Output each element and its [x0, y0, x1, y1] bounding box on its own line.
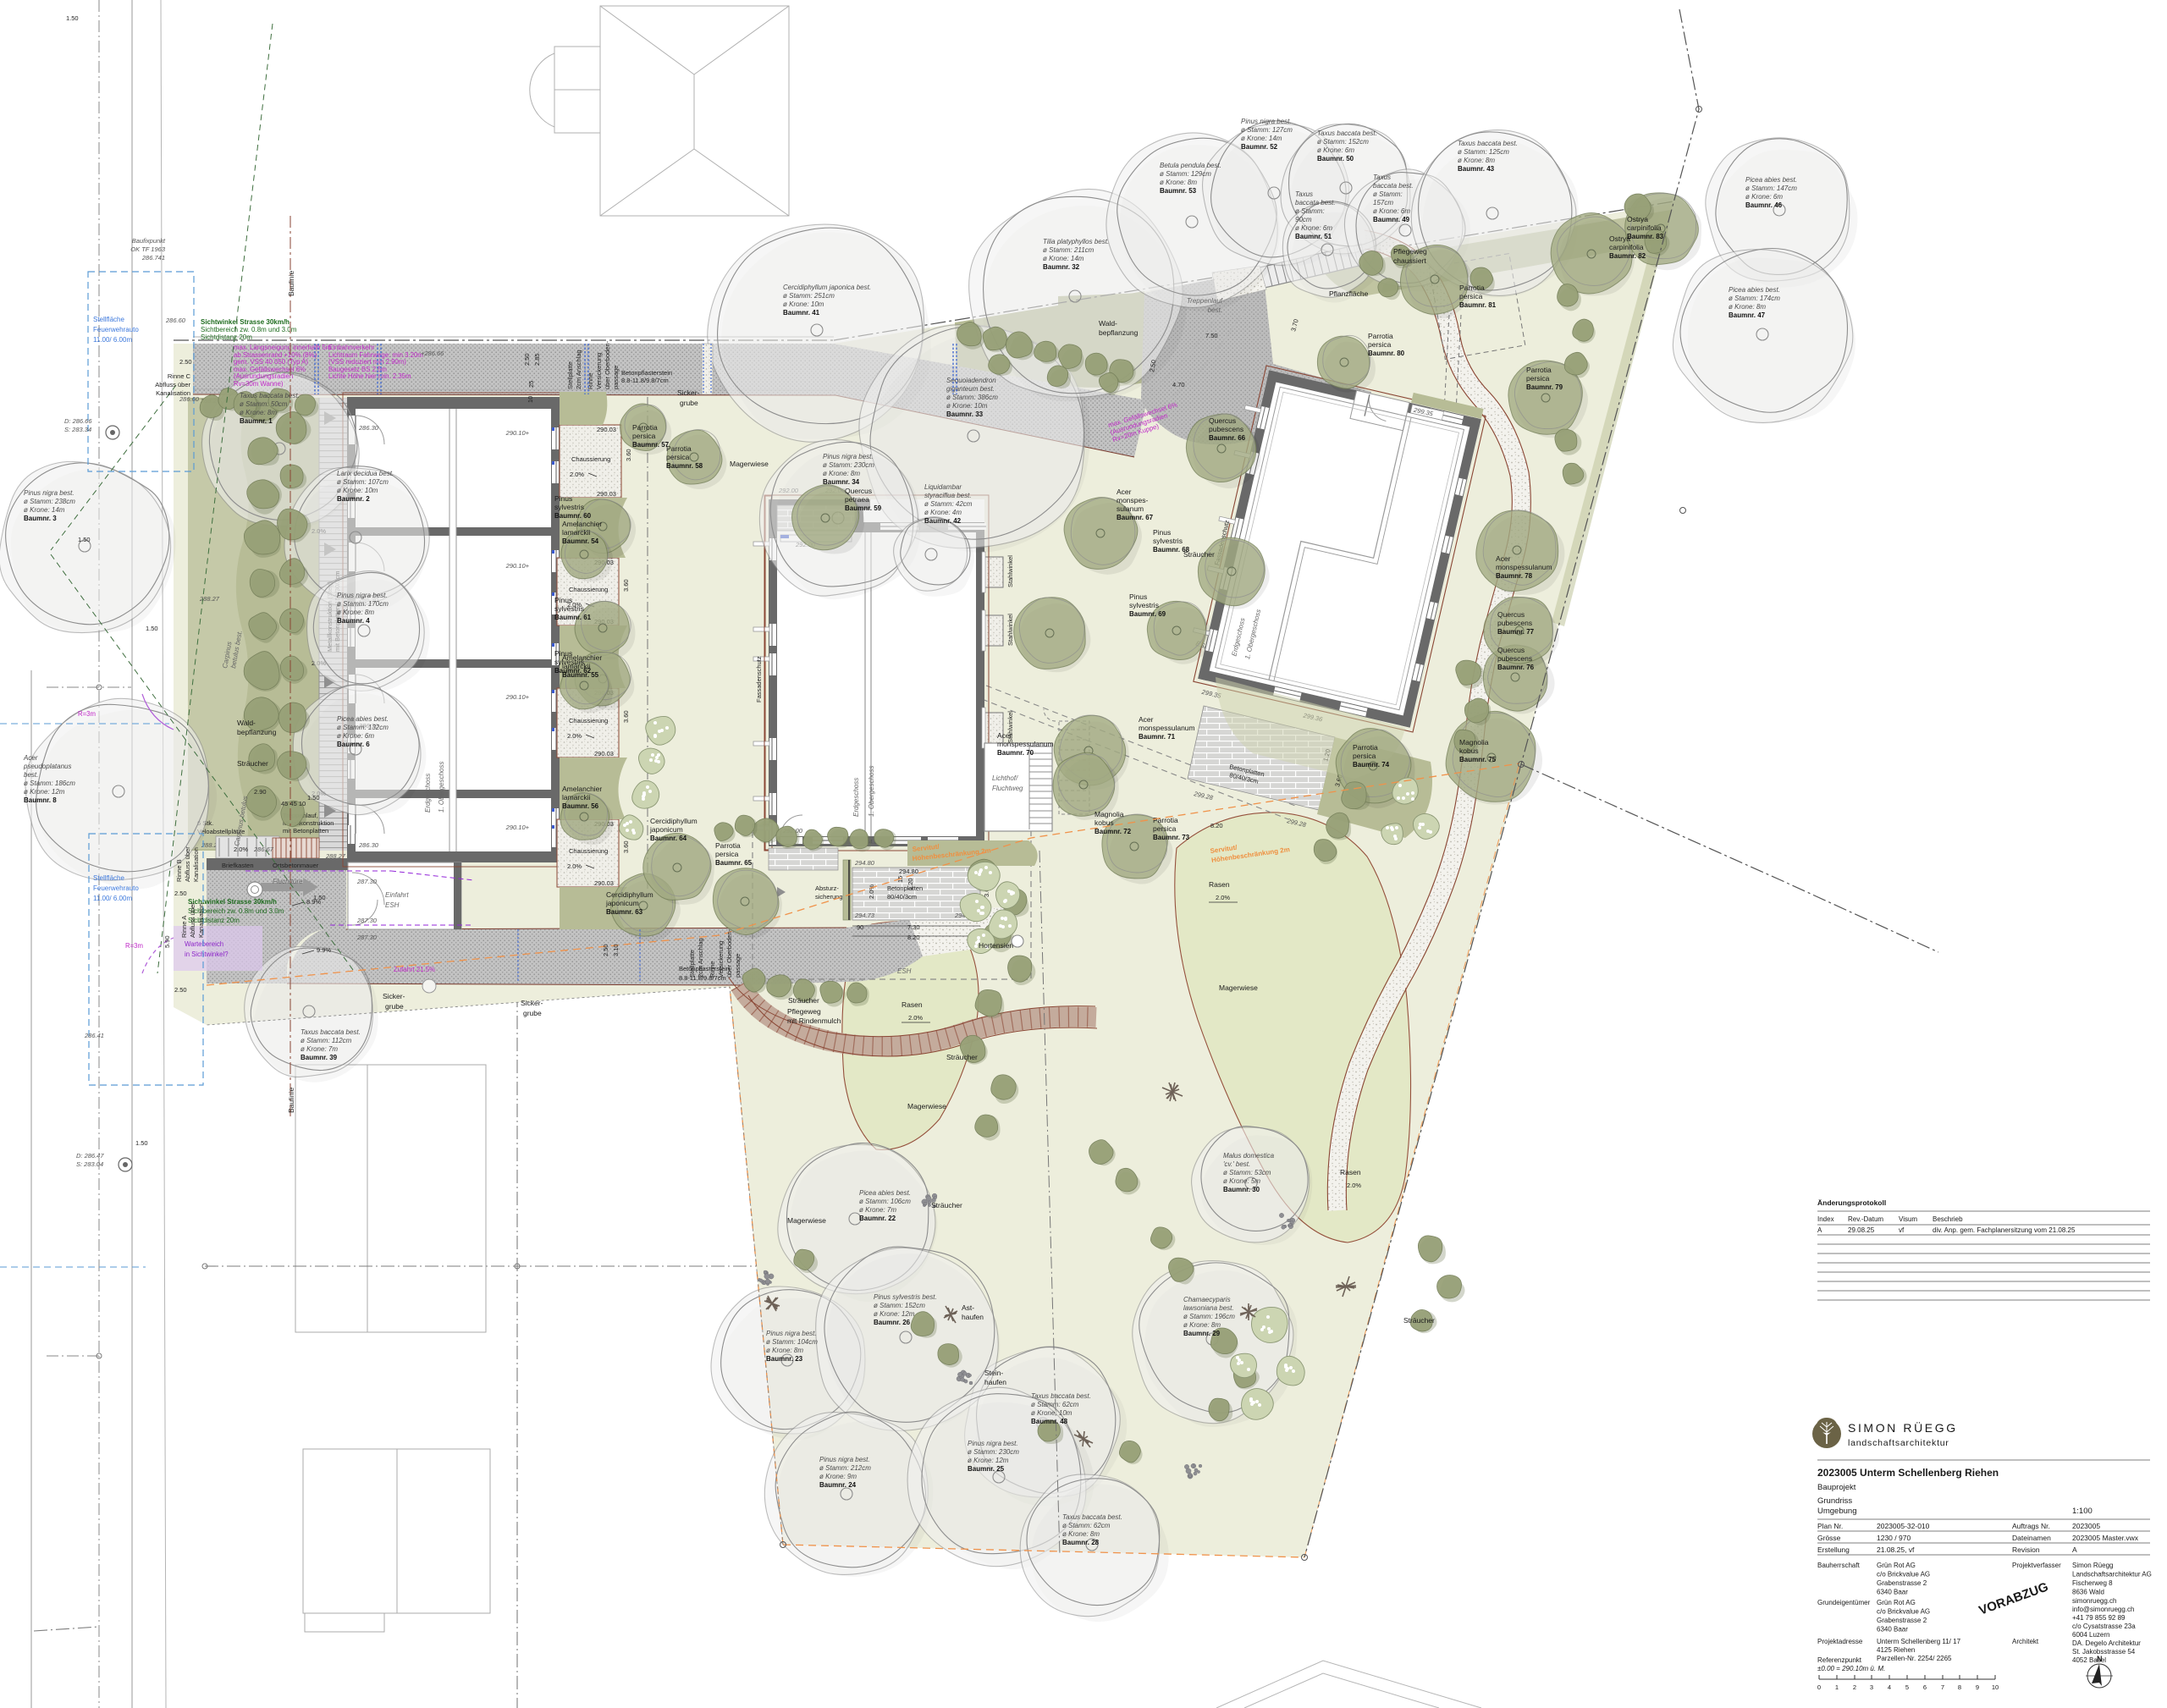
svg-text:ESH: ESH [897, 967, 912, 975]
svg-text:ø Krone: 8m: ø Krone: 8m [1458, 157, 1495, 164]
svg-text:Tilia platyphyllos best.: Tilia platyphyllos best. [1043, 238, 1109, 245]
svg-text:Treppenlauf: Treppenlauf [1187, 297, 1223, 305]
svg-text:lamarckii: lamarckii [562, 793, 591, 802]
svg-text:ø Krone: 14m: ø Krone: 14m [24, 506, 65, 514]
svg-text:ø Stamm: 251cm: ø Stamm: 251cm [783, 292, 835, 300]
svg-text:Taxus baccata best.: Taxus baccata best. [301, 1028, 361, 1036]
svg-text:Magerwiese: Magerwiese [787, 1216, 826, 1225]
svg-text:Baumnr. 57: Baumnr. 57 [632, 441, 670, 449]
svg-text:ø Krone: 8m: ø Krone: 8m [1729, 303, 1766, 311]
svg-text:Rev.-Datum: Rev.-Datum [1848, 1215, 1883, 1223]
svg-text:80/40/3cm: 80/40/3cm [887, 893, 917, 901]
svg-text:Sichtwinkel Strasse 30km/h: Sichtwinkel Strasse 30km/h [201, 318, 289, 326]
svg-text:Baumnr. 41: Baumnr. 41 [783, 309, 820, 317]
svg-text:ø Stamm: 147cm: ø Stamm: 147cm [1745, 185, 1797, 192]
svg-text:5: 5 [1905, 1683, 1909, 1691]
svg-text:Sicker-: Sicker- [677, 388, 700, 397]
svg-text:R=3m: R=3m [125, 942, 143, 950]
svg-text:Rinne A: Rinne A [180, 916, 188, 938]
svg-text:Pinus nigra best.: Pinus nigra best. [1241, 118, 1292, 125]
svg-text:Cercidiphyllum japonica best.: Cercidiphyllum japonica best. [783, 284, 871, 291]
svg-text:Revision: Revision [2012, 1545, 2040, 1554]
svg-text:1. Obergeschoss: 1. Obergeschoss [438, 762, 445, 813]
svg-text:Amelanchier: Amelanchier [562, 520, 602, 528]
svg-text:1.50: 1.50 [307, 794, 320, 802]
svg-text:286.30: 286.30 [358, 424, 379, 432]
svg-text:Baumnr. 80: Baumnr. 80 [1368, 350, 1405, 357]
svg-text:Ostrya: Ostrya [1627, 215, 1648, 223]
svg-text:japonicum: japonicum [649, 825, 683, 834]
svg-text:Rinne B: Rinne B [175, 859, 183, 882]
svg-text:sylvestris: sylvestris [1153, 537, 1183, 545]
svg-text:Projektverfasser: Projektverfasser [2012, 1562, 2061, 1569]
svg-text:grube: grube [523, 1009, 542, 1017]
svg-text:lamarckii: lamarckii [562, 528, 591, 537]
svg-text:A: A [2072, 1545, 2077, 1554]
svg-text:carpinifolia: carpinifolia [1609, 243, 1644, 251]
svg-text:Pinus: Pinus [554, 494, 572, 503]
svg-text:sylvestris: sylvestris [554, 503, 584, 511]
svg-text:Baumnr. 48: Baumnr. 48 [1031, 1418, 1068, 1425]
svg-text:Beschrieb: Beschrieb [1933, 1215, 1963, 1223]
svg-text:Einfahrt: Einfahrt [385, 891, 409, 899]
svg-text:lawsoniana best.: lawsoniana best. [1183, 1304, 1234, 1312]
svg-text:3.60: 3.60 [622, 840, 630, 853]
svg-text:ø Krone: 8m: ø Krone: 8m [1160, 179, 1197, 186]
svg-text:(Ausrundungsradien: (Ausrundungsradien [234, 372, 293, 380]
svg-text:8: 8 [1958, 1683, 1961, 1691]
svg-text:Pinus: Pinus [1153, 528, 1171, 537]
svg-text:286.41: 286.41 [84, 1032, 104, 1039]
svg-text:Plan Nr.: Plan Nr. [1817, 1522, 1843, 1530]
svg-text:8.8-11.8/9.8/7cm: 8.8-11.8/9.8/7cm [621, 377, 669, 384]
svg-text:Sichtdistanz 20m: Sichtdistanz 20m [201, 333, 252, 341]
svg-text:ø Krone: 10m: ø Krone: 10m [946, 402, 988, 410]
svg-text:8636 Wald: 8636 Wald [2072, 1589, 2104, 1596]
svg-text:ø Stamm:: ø Stamm: [1373, 190, 1403, 198]
svg-text:ø Krone: 10m: ø Krone: 10m [783, 300, 824, 308]
svg-text:Baumnr. 23: Baumnr. 23 [766, 1355, 803, 1363]
svg-text:ø Stamm: 127cm: ø Stamm: 127cm [1241, 126, 1293, 134]
svg-text:1.50: 1.50 [146, 625, 158, 632]
svg-text:1230 / 970: 1230 / 970 [1877, 1534, 1911, 1542]
svg-text:Betonplatten: Betonplatten [887, 884, 923, 892]
svg-text:ø Krone: 7m: ø Krone: 7m [301, 1045, 338, 1053]
svg-text:best.: best. [24, 771, 38, 779]
svg-text:ø Krone: 12m: ø Krone: 12m [24, 788, 65, 796]
svg-text:best.: best. [1208, 306, 1222, 314]
svg-text:Simon Rüegg: Simon Rüegg [2072, 1562, 2113, 1569]
svg-text:Stellfläche: Stellfläche [93, 874, 124, 882]
svg-text:Visum: Visum [1899, 1215, 1917, 1223]
svg-text:ø Krone: 10m: ø Krone: 10m [1031, 1409, 1072, 1417]
svg-text:div. Anp. gem. Fachplanersitzu: div. Anp. gem. Fachplanersitzung vom 21.… [1933, 1226, 2076, 1234]
svg-text:Absturz-: Absturz- [815, 884, 839, 892]
svg-text:Baumnr. 60: Baumnr. 60 [554, 512, 592, 520]
svg-text:286.67: 286.67 [253, 846, 274, 853]
svg-text:Fluchttüre: Fluchttüre [273, 878, 303, 885]
svg-text:ø Krone: 8m: ø Krone: 8m [337, 609, 374, 616]
svg-text:Taxus baccata best.: Taxus baccata best. [1458, 140, 1518, 147]
svg-text:Fassadenschutz: Fassadenschutz [755, 656, 763, 702]
svg-text:2.0%: 2.0% [567, 732, 582, 740]
svg-text:sicherung: sicherung [815, 893, 843, 901]
svg-text:Stahlwinkel: Stahlwinkel [1006, 614, 1014, 646]
svg-text:passage: passage [612, 366, 620, 389]
svg-text:Bauherrschaft: Bauherrschaft [1817, 1562, 1861, 1569]
svg-text:persica: persica [632, 432, 656, 440]
svg-text:bepflanzung: bepflanzung [237, 728, 277, 736]
svg-text:Baumnr. 4: Baumnr. 4 [337, 617, 370, 625]
svg-text:sylvestris: sylvestris [554, 604, 584, 613]
svg-text:pubescens: pubescens [1497, 619, 1532, 627]
svg-text:Pinus: Pinus [554, 596, 572, 604]
svg-text:8.20: 8.20 [1210, 822, 1223, 829]
svg-text:ø Krone: 6m: ø Krone: 6m [337, 732, 374, 740]
svg-text:Cercidiphyllum: Cercidiphyllum [606, 890, 653, 899]
svg-text:Rv=30m Wanne): Rv=30m Wanne) [234, 380, 284, 388]
svg-text:Sträucher: Sträucher [931, 1201, 962, 1209]
svg-text:Baumnr. 6: Baumnr. 6 [337, 741, 370, 748]
svg-text:Picea abies best.: Picea abies best. [859, 1189, 911, 1197]
svg-text:carpinifolia: carpinifolia [1627, 223, 1662, 232]
svg-text:Sträucher: Sträucher [1183, 550, 1215, 559]
svg-text:mit Betonplatten: mit Betonplatten [283, 827, 328, 835]
svg-text:Magnolia: Magnolia [1459, 738, 1489, 747]
svg-text:1.20: 1.20 [907, 878, 914, 890]
svg-text:Baumnr. 82: Baumnr. 82 [1609, 252, 1646, 260]
svg-text:ø Krone: 4m: ø Krone: 4m [924, 509, 962, 516]
svg-text:Fischerweg 8: Fischerweg 8 [2072, 1579, 2113, 1587]
svg-text:Parrotia: Parrotia [666, 444, 692, 453]
svg-text:Grabenstrasse 2: Grabenstrasse 2 [1877, 1579, 1927, 1587]
svg-text:1.50: 1.50 [78, 536, 91, 543]
svg-text:286.30: 286.30 [358, 841, 379, 849]
svg-text:haufen: haufen [962, 1313, 984, 1321]
svg-text:9.9%: 9.9% [317, 946, 331, 954]
svg-text:N: N [2097, 1655, 2103, 1663]
svg-text:Kanalisation: Kanalisation [192, 847, 200, 882]
svg-text:pubescens: pubescens [1209, 425, 1243, 433]
svg-text:ø Stamm: 152cm: ø Stamm: 152cm [874, 1302, 925, 1309]
svg-text:persica: persica [666, 453, 690, 461]
svg-text:294.80: 294.80 [854, 859, 875, 867]
svg-text:Liquidambar: Liquidambar [924, 483, 962, 491]
svg-text:8.20: 8.20 [907, 934, 920, 941]
svg-text:6340 Baar: 6340 Baar [1877, 1589, 1908, 1596]
svg-text:Baulinie: Baulinie [287, 1087, 295, 1113]
svg-text:OK TF 1963: OK TF 1963 [130, 245, 166, 253]
svg-text:bepflanzung: bepflanzung [1099, 328, 1139, 337]
svg-text:Baumnr. 70: Baumnr. 70 [997, 749, 1034, 757]
svg-text:Baumnr. 76: Baumnr. 76 [1497, 664, 1535, 671]
svg-text:2cm Anschlag: 2cm Anschlag [575, 350, 582, 389]
svg-text:Grundeigentümer: Grundeigentümer [1817, 1599, 1871, 1606]
svg-text:Baumnr. 39: Baumnr. 39 [301, 1054, 338, 1061]
svg-text:A: A [1817, 1226, 1822, 1234]
svg-text:Baumnr. 26: Baumnr. 26 [874, 1319, 911, 1326]
svg-text:Baumnr. 28: Baumnr. 28 [1062, 1539, 1100, 1546]
svg-text:max. Längsneigung innerhalb 5m: max. Längsneigung innerhalb 5m [234, 344, 331, 351]
svg-text:Einbahnverkehr: Einbahnverkehr [328, 344, 375, 351]
svg-text:3: 3 [1870, 1683, 1873, 1691]
svg-text:ø Stamm: 170cm: ø Stamm: 170cm [337, 600, 389, 608]
svg-text:287.30: 287.30 [356, 917, 378, 924]
svg-text:Hortensien: Hortensien [979, 941, 1013, 950]
svg-text:Versickerung: Versickerung [595, 353, 603, 389]
svg-text:ø Stamm: 211cm: ø Stamm: 211cm [1043, 246, 1095, 254]
svg-text:info@simonruegg.ch: info@simonruegg.ch [2072, 1606, 2135, 1613]
svg-text:Amelanchier: Amelanchier [562, 785, 602, 793]
svg-text:290.03: 290.03 [594, 750, 614, 758]
svg-text:10: 10 [1992, 1683, 1999, 1691]
svg-text:ø Krone: 14m: ø Krone: 14m [1043, 255, 1084, 262]
svg-text:Baumnr. 8: Baumnr. 8 [24, 796, 57, 804]
svg-text:kobus: kobus [1459, 747, 1479, 755]
svg-text:90: 90 [857, 923, 863, 931]
svg-text:über Oberboden-: über Oberboden- [725, 928, 733, 978]
svg-text:Grün Rot AG: Grün Rot AG [1877, 1599, 1916, 1606]
svg-text:Sträucher: Sträucher [237, 759, 268, 768]
svg-text:Baumnr. 67: Baumnr. 67 [1117, 514, 1154, 521]
svg-text:landschaftsarchitektur: landschaftsarchitektur [1848, 1438, 1949, 1448]
svg-text:Parzellen-Nr. 2254/ 2265: Parzellen-Nr. 2254/ 2265 [1877, 1655, 1952, 1662]
svg-text:DA. Degelo Architektur: DA. Degelo Architektur [2072, 1639, 2141, 1647]
svg-text:Lichthof/: Lichthof/ [992, 774, 1018, 782]
svg-text:1.50: 1.50 [66, 14, 79, 22]
svg-text:(VSS reduziert min 2.90m): (VSS reduziert min 2.90m) [328, 358, 406, 366]
svg-text:Pinus nigra best.: Pinus nigra best. [766, 1330, 817, 1337]
svg-text:3.60: 3.60 [625, 449, 632, 461]
svg-text:c/o Brickvalue AG: c/o Brickvalue AG [1877, 1608, 1930, 1616]
svg-text:Baumnr. 25: Baumnr. 25 [968, 1465, 1005, 1473]
svg-text:2.90: 2.90 [254, 788, 267, 796]
svg-text:2.50: 2.50 [602, 944, 609, 956]
svg-text:Grün Rot AG: Grün Rot AG [1877, 1562, 1916, 1569]
svg-text:Baumnr. 2: Baumnr. 2 [337, 495, 370, 503]
svg-text:ø Krone: 14m: ø Krone: 14m [1241, 135, 1282, 142]
svg-text:in Sichtwinkel?: in Sichtwinkel? [185, 950, 229, 958]
svg-text:Baumnr. 30: Baumnr. 30 [1223, 1186, 1260, 1193]
svg-text:287.30: 287.30 [356, 878, 378, 885]
svg-text:Cercidiphyllum: Cercidiphyllum [650, 817, 698, 825]
svg-text:ø Krone: 7m: ø Krone: 7m [859, 1206, 896, 1214]
svg-text:10: 10 [527, 396, 534, 403]
svg-text:ø Stamm: 50cm: ø Stamm: 50cm [240, 400, 288, 408]
svg-text:Baulinie: Baulinie [287, 270, 295, 296]
svg-text:ø Krone: 6m: ø Krone: 6m [1317, 146, 1354, 154]
svg-text:290.10+: 290.10+ [505, 693, 530, 701]
svg-text:pseudoplatanus: pseudoplatanus [23, 763, 72, 770]
svg-text:ø Krone: 8m: ø Krone: 8m [1062, 1530, 1100, 1538]
svg-text:4: 4 [1888, 1683, 1891, 1691]
svg-text:290.10+: 290.10+ [505, 429, 530, 437]
svg-text:Stellplatte: Stellplatte [688, 950, 696, 978]
svg-text:chaussiert: chaussiert [1393, 256, 1426, 265]
svg-text:Chaussierung: Chaussierung [569, 586, 608, 593]
svg-text:Änderungsprotokoll: Änderungsprotokoll [1817, 1198, 1886, 1207]
svg-text:Betula pendula best.: Betula pendula best. [1160, 162, 1221, 169]
svg-text:5.90: 5.90 [163, 935, 171, 948]
svg-text:D: 286.66: D: 286.66 [64, 417, 92, 425]
svg-text:Stellplatte: Stellplatte [566, 361, 574, 389]
svg-text:Baumnr. 33: Baumnr. 33 [946, 410, 984, 418]
svg-text:1: 1 [1835, 1683, 1839, 1691]
svg-text:Pflegeweg: Pflegeweg [1393, 247, 1427, 256]
svg-text:Pflanzfläche: Pflanzfläche [1329, 289, 1369, 298]
svg-text:286.60: 286.60 [179, 395, 200, 403]
svg-text:Baumnr. 3: Baumnr. 3 [24, 515, 57, 522]
svg-text:Stahlwinkel: Stahlwinkel [1006, 555, 1014, 587]
svg-text:Baumnr. 46: Baumnr. 46 [1745, 201, 1783, 209]
svg-text:Acer: Acer [997, 731, 1012, 740]
svg-text:Baumnr. 32: Baumnr. 32 [1043, 263, 1080, 271]
svg-text:Chaussierung: Chaussierung [569, 717, 608, 725]
svg-text:baccata best.: baccata best. [1295, 199, 1336, 207]
svg-text:ø Stamm: 196cm: ø Stamm: 196cm [1183, 1313, 1235, 1320]
svg-text:haufen: haufen [984, 1378, 1006, 1386]
svg-text:Baumnr. 50: Baumnr. 50 [1317, 155, 1354, 163]
svg-text:Wald-: Wald- [1099, 319, 1117, 328]
svg-text:Baumnr. 53: Baumnr. 53 [1160, 187, 1197, 195]
svg-text:lamarckii: lamarckii [562, 662, 591, 670]
svg-text:grube: grube [680, 399, 698, 407]
svg-text:ø Stamm: 53cm: ø Stamm: 53cm [1223, 1169, 1271, 1176]
svg-text:Baumnr. 73: Baumnr. 73 [1153, 834, 1190, 841]
svg-text:Projektadresse: Projektadresse [1817, 1638, 1863, 1645]
svg-text:Abfluss über: Abfluss über [189, 902, 196, 938]
svg-text:1. Obergeschoss: 1. Obergeschoss [868, 766, 875, 817]
svg-text:japonicum: japonicum [605, 899, 639, 907]
svg-text:+286.66: +286.66 [421, 350, 444, 357]
svg-text:monspessulanum: monspessulanum [997, 740, 1054, 748]
svg-text:Parrotia: Parrotia [1368, 332, 1393, 340]
svg-text:Magnolia: Magnolia [1095, 810, 1124, 818]
svg-text:Ast-: Ast- [962, 1303, 974, 1312]
svg-text:Picea abies best.: Picea abies best. [337, 715, 389, 723]
svg-text:Baumnr. 83: Baumnr. 83 [1627, 233, 1664, 240]
svg-text:über Oberboden-: über Oberboden- [604, 340, 611, 389]
svg-text:Baumnr. 78: Baumnr. 78 [1496, 572, 1533, 580]
svg-text:Fluchtweg: Fluchtweg [992, 785, 1023, 792]
svg-text:Chaussierung: Chaussierung [571, 455, 610, 463]
svg-text:Baumnr. 55: Baumnr. 55 [562, 671, 599, 679]
svg-text:Stellfläche: Stellfläche [93, 316, 124, 323]
svg-text:Picea abies best.: Picea abies best. [1729, 286, 1780, 294]
svg-text:Acer: Acer [1117, 488, 1132, 496]
svg-text:ø Stamm: 212cm: ø Stamm: 212cm [819, 1464, 871, 1472]
svg-text:Taxus: Taxus [1295, 190, 1313, 198]
svg-text:Abfluss über: Abfluss über [155, 381, 190, 388]
svg-text:Larix decidua best.: Larix decidua best. [337, 470, 394, 477]
svg-text:vf: vf [1899, 1226, 1905, 1234]
svg-text:Baufixpunkt: Baufixpunkt [132, 237, 166, 245]
svg-text:21.08.25, vf: 21.08.25, vf [1877, 1545, 1915, 1554]
svg-text:Grösse: Grösse [1817, 1534, 1841, 1542]
svg-text:Wartebereich: Wartebereich [185, 940, 223, 948]
svg-text:Baumnr. 79: Baumnr. 79 [1526, 383, 1563, 391]
svg-text:ø Krone: 8m: ø Krone: 8m [766, 1347, 803, 1354]
svg-text:2.0%: 2.0% [567, 862, 582, 870]
svg-text:Baumnr. 64: Baumnr. 64 [650, 835, 687, 842]
svg-text:Wald-: Wald- [237, 719, 256, 727]
svg-text:ø Stamm: 186cm: ø Stamm: 186cm [24, 780, 75, 787]
svg-text:4.70: 4.70 [1172, 381, 1185, 388]
svg-text:R=3m: R=3m [78, 710, 96, 718]
svg-text:Amelanchier: Amelanchier [562, 653, 602, 662]
svg-text:Baumnr. 63: Baumnr. 63 [606, 908, 643, 916]
svg-text:Baumnr. 43: Baumnr. 43 [1458, 165, 1495, 173]
svg-text:Feuerwehrauto: Feuerwehrauto [93, 326, 139, 333]
svg-text:ø Krone: 12m: ø Krone: 12m [968, 1457, 1009, 1464]
svg-text:290.03: 290.03 [597, 490, 616, 498]
svg-text:6: 6 [1923, 1683, 1927, 1691]
svg-text:Pinus sylvestris best.: Pinus sylvestris best. [874, 1293, 937, 1301]
svg-text:S: 283.04: S: 283.04 [76, 1160, 103, 1168]
svg-text:2.0%: 2.0% [908, 1014, 923, 1022]
svg-text:Bauprojekt: Bauprojekt [1817, 1483, 1856, 1492]
svg-text:Versickerung: Versickerung [717, 941, 725, 978]
svg-text:157cm: 157cm [1373, 199, 1393, 207]
svg-text:2.0%: 2.0% [1347, 1182, 1361, 1189]
svg-text:Kanalisation: Kanalisation [197, 903, 205, 938]
svg-text:Lichte Höhe hier min. 2.35m: Lichte Höhe hier min. 2.35m [328, 372, 411, 380]
svg-text:passage: passage [734, 954, 742, 978]
svg-text:Baumnr. 77: Baumnr. 77 [1497, 628, 1535, 636]
svg-text:Sicker-: Sicker- [383, 992, 405, 1000]
svg-text:ø Stamm: 174cm: ø Stamm: 174cm [1729, 295, 1780, 302]
svg-text:Baumnr. 59: Baumnr. 59 [845, 504, 882, 512]
svg-text:Pinus nigra best.: Pinus nigra best. [968, 1440, 1018, 1447]
svg-text:Baumnr. 22: Baumnr. 22 [859, 1215, 896, 1222]
svg-text:mit Rindenmulch: mit Rindenmulch [787, 1017, 841, 1025]
svg-text:Grundriss: Grundriss [1817, 1496, 1852, 1506]
svg-text:c/o Cysatstrasse 23a: c/o Cysatstrasse 23a [2072, 1623, 2136, 1630]
svg-text:1:100: 1:100 [2072, 1507, 2093, 1516]
svg-text:Erdgeschoss: Erdgeschoss [852, 778, 860, 817]
svg-text:Rasen: Rasen [1209, 880, 1230, 889]
svg-text:Briefkasten: Briefkasten [222, 862, 254, 869]
svg-text:SIMON RÜEGG: SIMON RÜEGG [1848, 1420, 1958, 1435]
svg-text:Pinus nigra best.: Pinus nigra best. [819, 1456, 870, 1463]
svg-text:ø Krone: 12m: ø Krone: 12m [874, 1310, 915, 1318]
svg-text:1.50: 1.50 [135, 1139, 148, 1147]
svg-text:2.50: 2.50 [174, 890, 187, 897]
svg-text:Taxus baccata best.: Taxus baccata best. [1031, 1392, 1091, 1400]
svg-text:gem. VSS 40 050 (Typ A): gem. VSS 40 050 (Typ A) [234, 358, 308, 366]
svg-text:Taxus baccata best.: Taxus baccata best. [1317, 129, 1377, 137]
svg-text:9: 9 [1976, 1683, 1979, 1691]
svg-text:Parrotia: Parrotia [632, 423, 658, 432]
svg-text:Erstellung: Erstellung [1817, 1545, 1850, 1554]
svg-text:ø Stamm: 106cm: ø Stamm: 106cm [859, 1198, 911, 1205]
svg-text:ø Krone: 6m: ø Krone: 6m [1745, 193, 1783, 201]
svg-text:Abfluss über: Abfluss über [184, 846, 191, 882]
svg-text:Baumnr. 1: Baumnr. 1 [240, 417, 273, 425]
svg-text:Quercus: Quercus [1209, 416, 1236, 425]
svg-text:Baumnr. 49: Baumnr. 49 [1373, 216, 1410, 223]
svg-text:ø Stamm: 112cm: ø Stamm: 112cm [301, 1037, 352, 1044]
svg-text:Index: Index [1817, 1215, 1834, 1223]
svg-text:Referenzpunkt: Referenzpunkt [1817, 1656, 1862, 1664]
svg-text:2.50: 2.50 [523, 353, 531, 366]
svg-text:ø Krone: 8m: ø Krone: 8m [240, 409, 277, 416]
svg-text:3.60: 3.60 [622, 579, 630, 592]
svg-text:sylvestris: sylvestris [1129, 601, 1159, 609]
svg-text:2023005: 2023005 [2072, 1522, 2100, 1530]
svg-text:Taxus baccata best.: Taxus baccata best. [1062, 1513, 1122, 1521]
svg-text:2.50: 2.50 [179, 358, 192, 366]
